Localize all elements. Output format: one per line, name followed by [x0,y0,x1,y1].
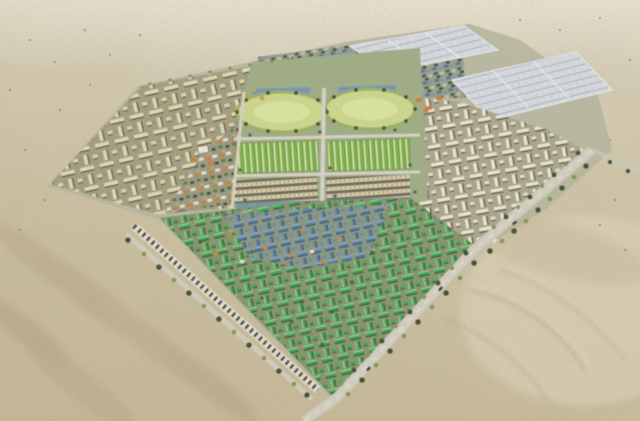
aerial-rendering [0,0,640,421]
screenshot-root [0,0,640,421]
image-grain [0,0,640,421]
